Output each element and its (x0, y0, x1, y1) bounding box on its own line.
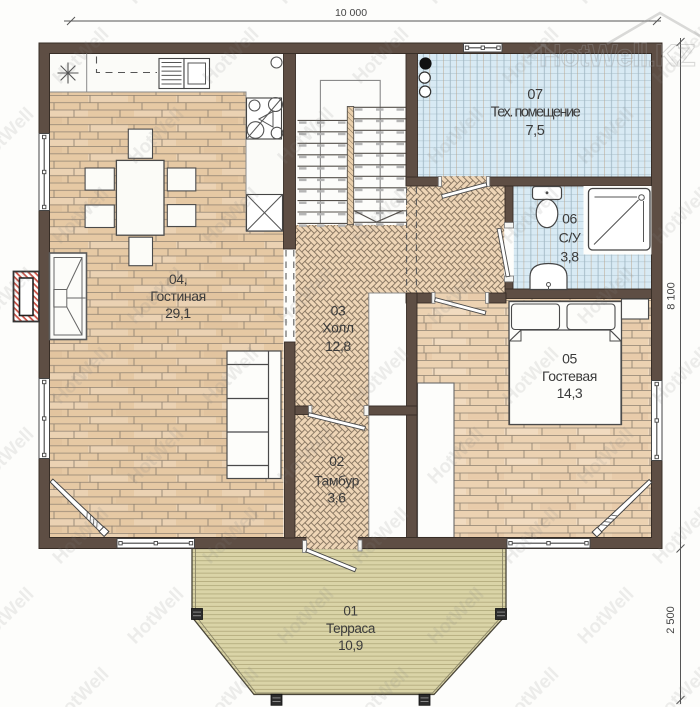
svg-text:07: 07 (527, 87, 543, 103)
svg-text:03: 03 (331, 303, 346, 319)
svg-text:HotWell: HotWell (574, 584, 639, 649)
svg-text:HotWell: HotWell (199, 664, 264, 707)
svg-text:HotWell: HotWell (0, 0, 38, 8)
svg-text:06: 06 (562, 211, 577, 227)
svg-text:HotWell: HotWell (49, 664, 114, 707)
svg-text:HotWell: HotWell (0, 584, 38, 649)
svg-text:Тех. помещение: Тех. помещение (491, 105, 581, 121)
svg-text:HotWell: HotWell (0, 104, 38, 169)
svg-text:05: 05 (562, 351, 577, 367)
svg-text:2 500: 2 500 (665, 606, 677, 634)
svg-text:7,5: 7,5 (526, 123, 545, 139)
svg-text:Тамбур: Тамбур (314, 473, 360, 489)
svg-text:14,3: 14,3 (557, 385, 583, 401)
svg-text:HotWell: HotWell (424, 0, 489, 8)
svg-text:Холл: Холл (322, 320, 354, 336)
svg-text:HotWell: HotWell (649, 664, 700, 707)
svg-text:29,1: 29,1 (165, 305, 191, 321)
svg-text:3,8: 3,8 (560, 249, 579, 265)
svg-text:HotWell: HotWell (124, 584, 189, 649)
svg-text:HotWell: HotWell (574, 0, 639, 8)
svg-text:HotWell: HotWell (124, 0, 189, 8)
svg-text:3,6: 3,6 (327, 490, 346, 506)
svg-text:HotWell: HotWell (274, 0, 339, 8)
svg-text:02: 02 (329, 453, 344, 469)
svg-text:Терраса: Терраса (326, 621, 376, 636)
svg-text:8 100: 8 100 (666, 282, 678, 310)
svg-text:HotWell: HotWell (0, 424, 38, 489)
svg-text:01: 01 (343, 604, 357, 619)
svg-text:10,9: 10,9 (338, 638, 363, 653)
svg-text:С/У: С/У (559, 230, 581, 246)
svg-text:12,8: 12,8 (325, 338, 351, 354)
svg-text:HotWell: HotWell (499, 664, 564, 707)
svg-text:HotWell.KZ: HotWell.KZ (539, 37, 695, 73)
svg-text:10 000: 10 000 (335, 7, 367, 19)
